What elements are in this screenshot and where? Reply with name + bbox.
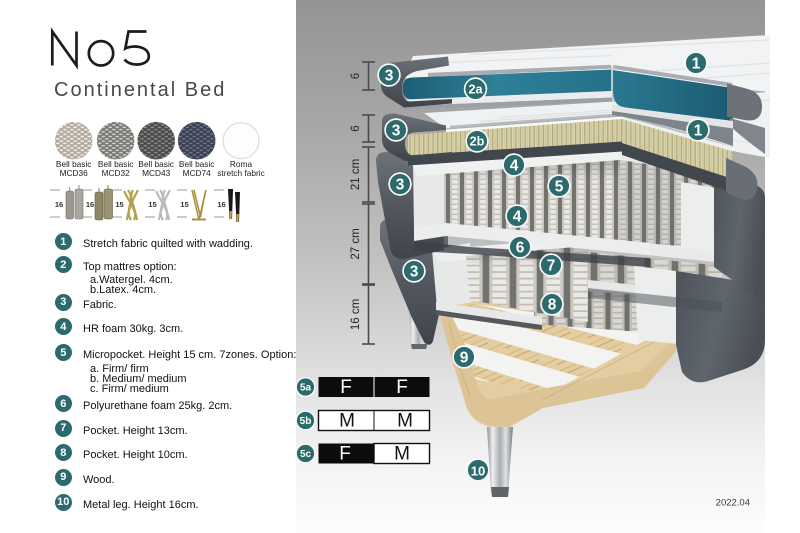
svg-text:3: 3: [392, 123, 401, 140]
svg-text:4: 4: [510, 158, 519, 175]
svg-text:3: 3: [410, 264, 419, 281]
svg-text:10: 10: [471, 464, 485, 479]
svg-text:9: 9: [460, 350, 469, 367]
svg-text:F: F: [339, 444, 351, 465]
svg-text:5: 5: [555, 179, 564, 196]
svg-text:3: 3: [396, 177, 405, 194]
svg-text:M: M: [394, 444, 410, 465]
svg-text:M: M: [397, 411, 413, 432]
svg-text:M: M: [339, 411, 355, 432]
svg-text:F: F: [340, 377, 352, 398]
svg-text:4: 4: [513, 209, 522, 226]
svg-text:6: 6: [516, 240, 525, 257]
svg-text:21 cm: 21 cm: [350, 159, 362, 190]
svg-text:6: 6: [350, 125, 362, 131]
svg-text:2022.04: 2022.04: [716, 498, 750, 509]
svg-text:2b: 2b: [470, 135, 485, 149]
svg-text:3: 3: [385, 68, 394, 85]
svg-text:1: 1: [692, 56, 701, 73]
svg-text:27 cm: 27 cm: [350, 228, 362, 259]
svg-text:7: 7: [547, 258, 556, 275]
svg-text:16 cm: 16 cm: [350, 299, 362, 330]
svg-text:2a: 2a: [468, 83, 483, 97]
svg-text:1: 1: [694, 123, 703, 140]
svg-text:5b: 5b: [300, 416, 312, 427]
svg-text:5c: 5c: [300, 449, 312, 460]
svg-text:F: F: [396, 377, 408, 398]
svg-text:8: 8: [548, 297, 557, 314]
svg-text:5a: 5a: [300, 383, 312, 394]
svg-text:6: 6: [350, 73, 362, 79]
